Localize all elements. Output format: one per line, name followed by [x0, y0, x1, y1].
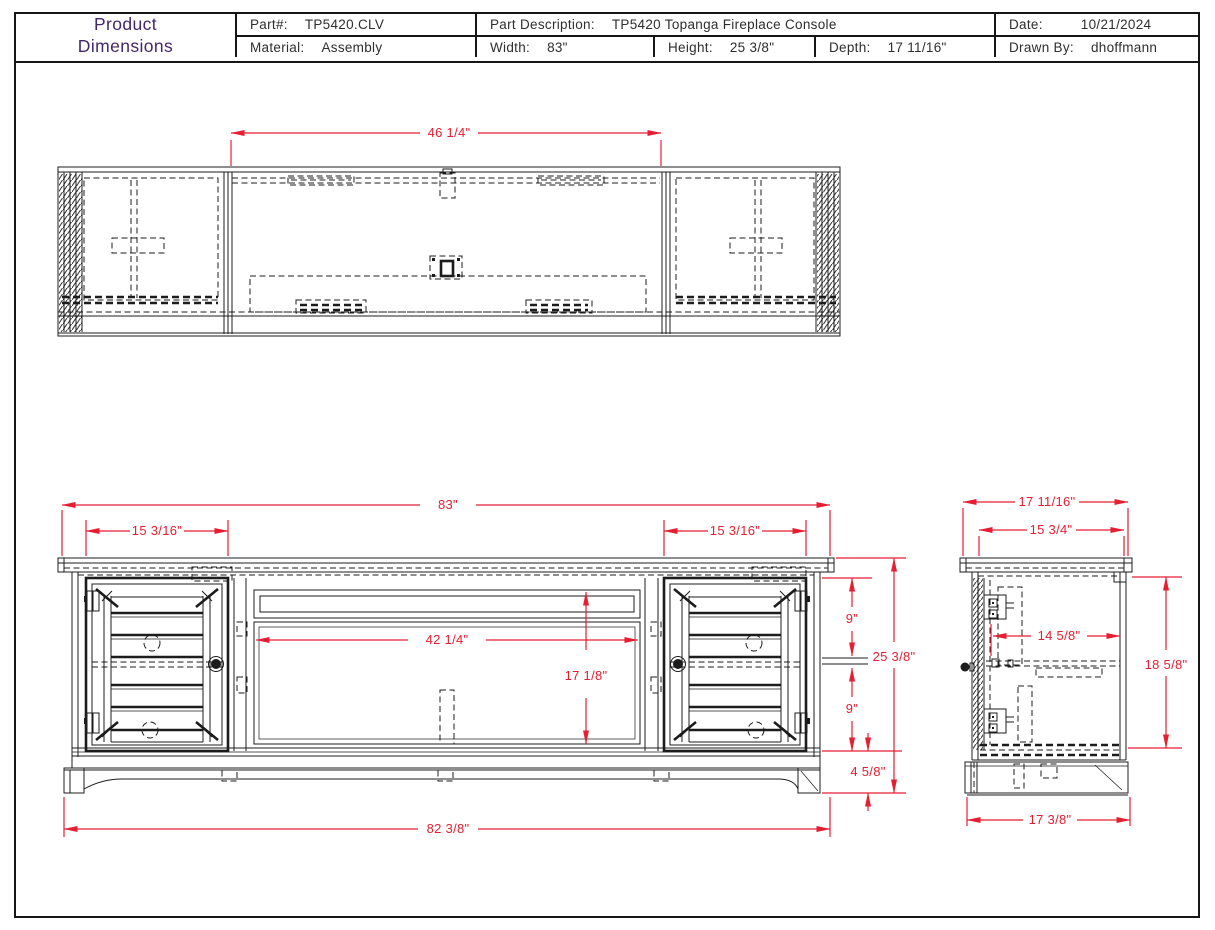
front-lower-section-dim: 9": [822, 668, 902, 751]
front-left-door-width-label: 15 3/16": [132, 523, 182, 538]
front-right-door-width-dim: 15 3/16": [664, 520, 806, 556]
front-view: 83" 15 3/16" 15 3/16" 42 1/4": [58, 497, 921, 837]
side-interior-depth-dim: 14 5/8": [991, 624, 1120, 656]
front-opening-height-dim: 17 1/8": [560, 592, 612, 744]
front-base-height-label: 4 5/8": [850, 764, 885, 779]
side-top-depth-dim: 15 3/4": [979, 522, 1124, 556]
drawing-canvas: 46 1/4": [0, 0, 1215, 930]
front-overall-height-dim: 25 3/8": [822, 558, 921, 793]
front-left-door-width-dim: 15 3/16": [86, 520, 228, 556]
front-opening-width-dim: 42 1/4": [256, 632, 638, 647]
front-base-height-dim: 4 5/8": [850, 733, 885, 811]
side-base-depth-label: 17 3/8": [1029, 812, 1072, 827]
front-upper-section-dim: 9": [822, 578, 872, 656]
front-opening-height-label: 17 1/8": [565, 668, 608, 683]
drawing-sheet: Product Dimensions Part#: TP5420.CLV Par…: [0, 0, 1215, 930]
top-view: 46 1/4": [58, 125, 840, 336]
left-door: [84, 578, 228, 751]
front-overall-width-label: 83": [438, 497, 458, 512]
side-top-depth-label: 15 3/4": [1030, 522, 1073, 537]
top-opening-width-label: 46 1/4": [428, 125, 471, 140]
side-view: 17 11/16" 15 3/4" 14 5/8": [960, 494, 1192, 827]
front-right-door-width-label: 15 3/16": [710, 523, 760, 538]
top-opening-width-dim: 46 1/4": [231, 125, 661, 166]
front-body-width-dim: 82 3/8": [64, 797, 830, 837]
front-lower-section-label: 9": [846, 701, 859, 716]
front-upper-section-label: 9": [846, 611, 859, 626]
left-door-knob: [211, 659, 221, 669]
side-knob: [961, 663, 970, 672]
side-case-height-label: 18 5/8": [1145, 657, 1188, 672]
side-overall-depth-label: 17 11/16": [1019, 494, 1076, 509]
front-overall-height-label: 25 3/8": [873, 649, 916, 664]
right-door-knob: [673, 659, 683, 669]
right-door: [664, 578, 810, 751]
side-interior-depth-label: 14 5/8": [1038, 628, 1081, 643]
front-opening-width-label: 42 1/4": [426, 632, 469, 647]
side-base-depth-dim: 17 3/8": [967, 797, 1130, 827]
front-body-width-label: 82 3/8": [427, 821, 470, 836]
side-case-height-dim: 18 5/8": [1128, 577, 1192, 748]
